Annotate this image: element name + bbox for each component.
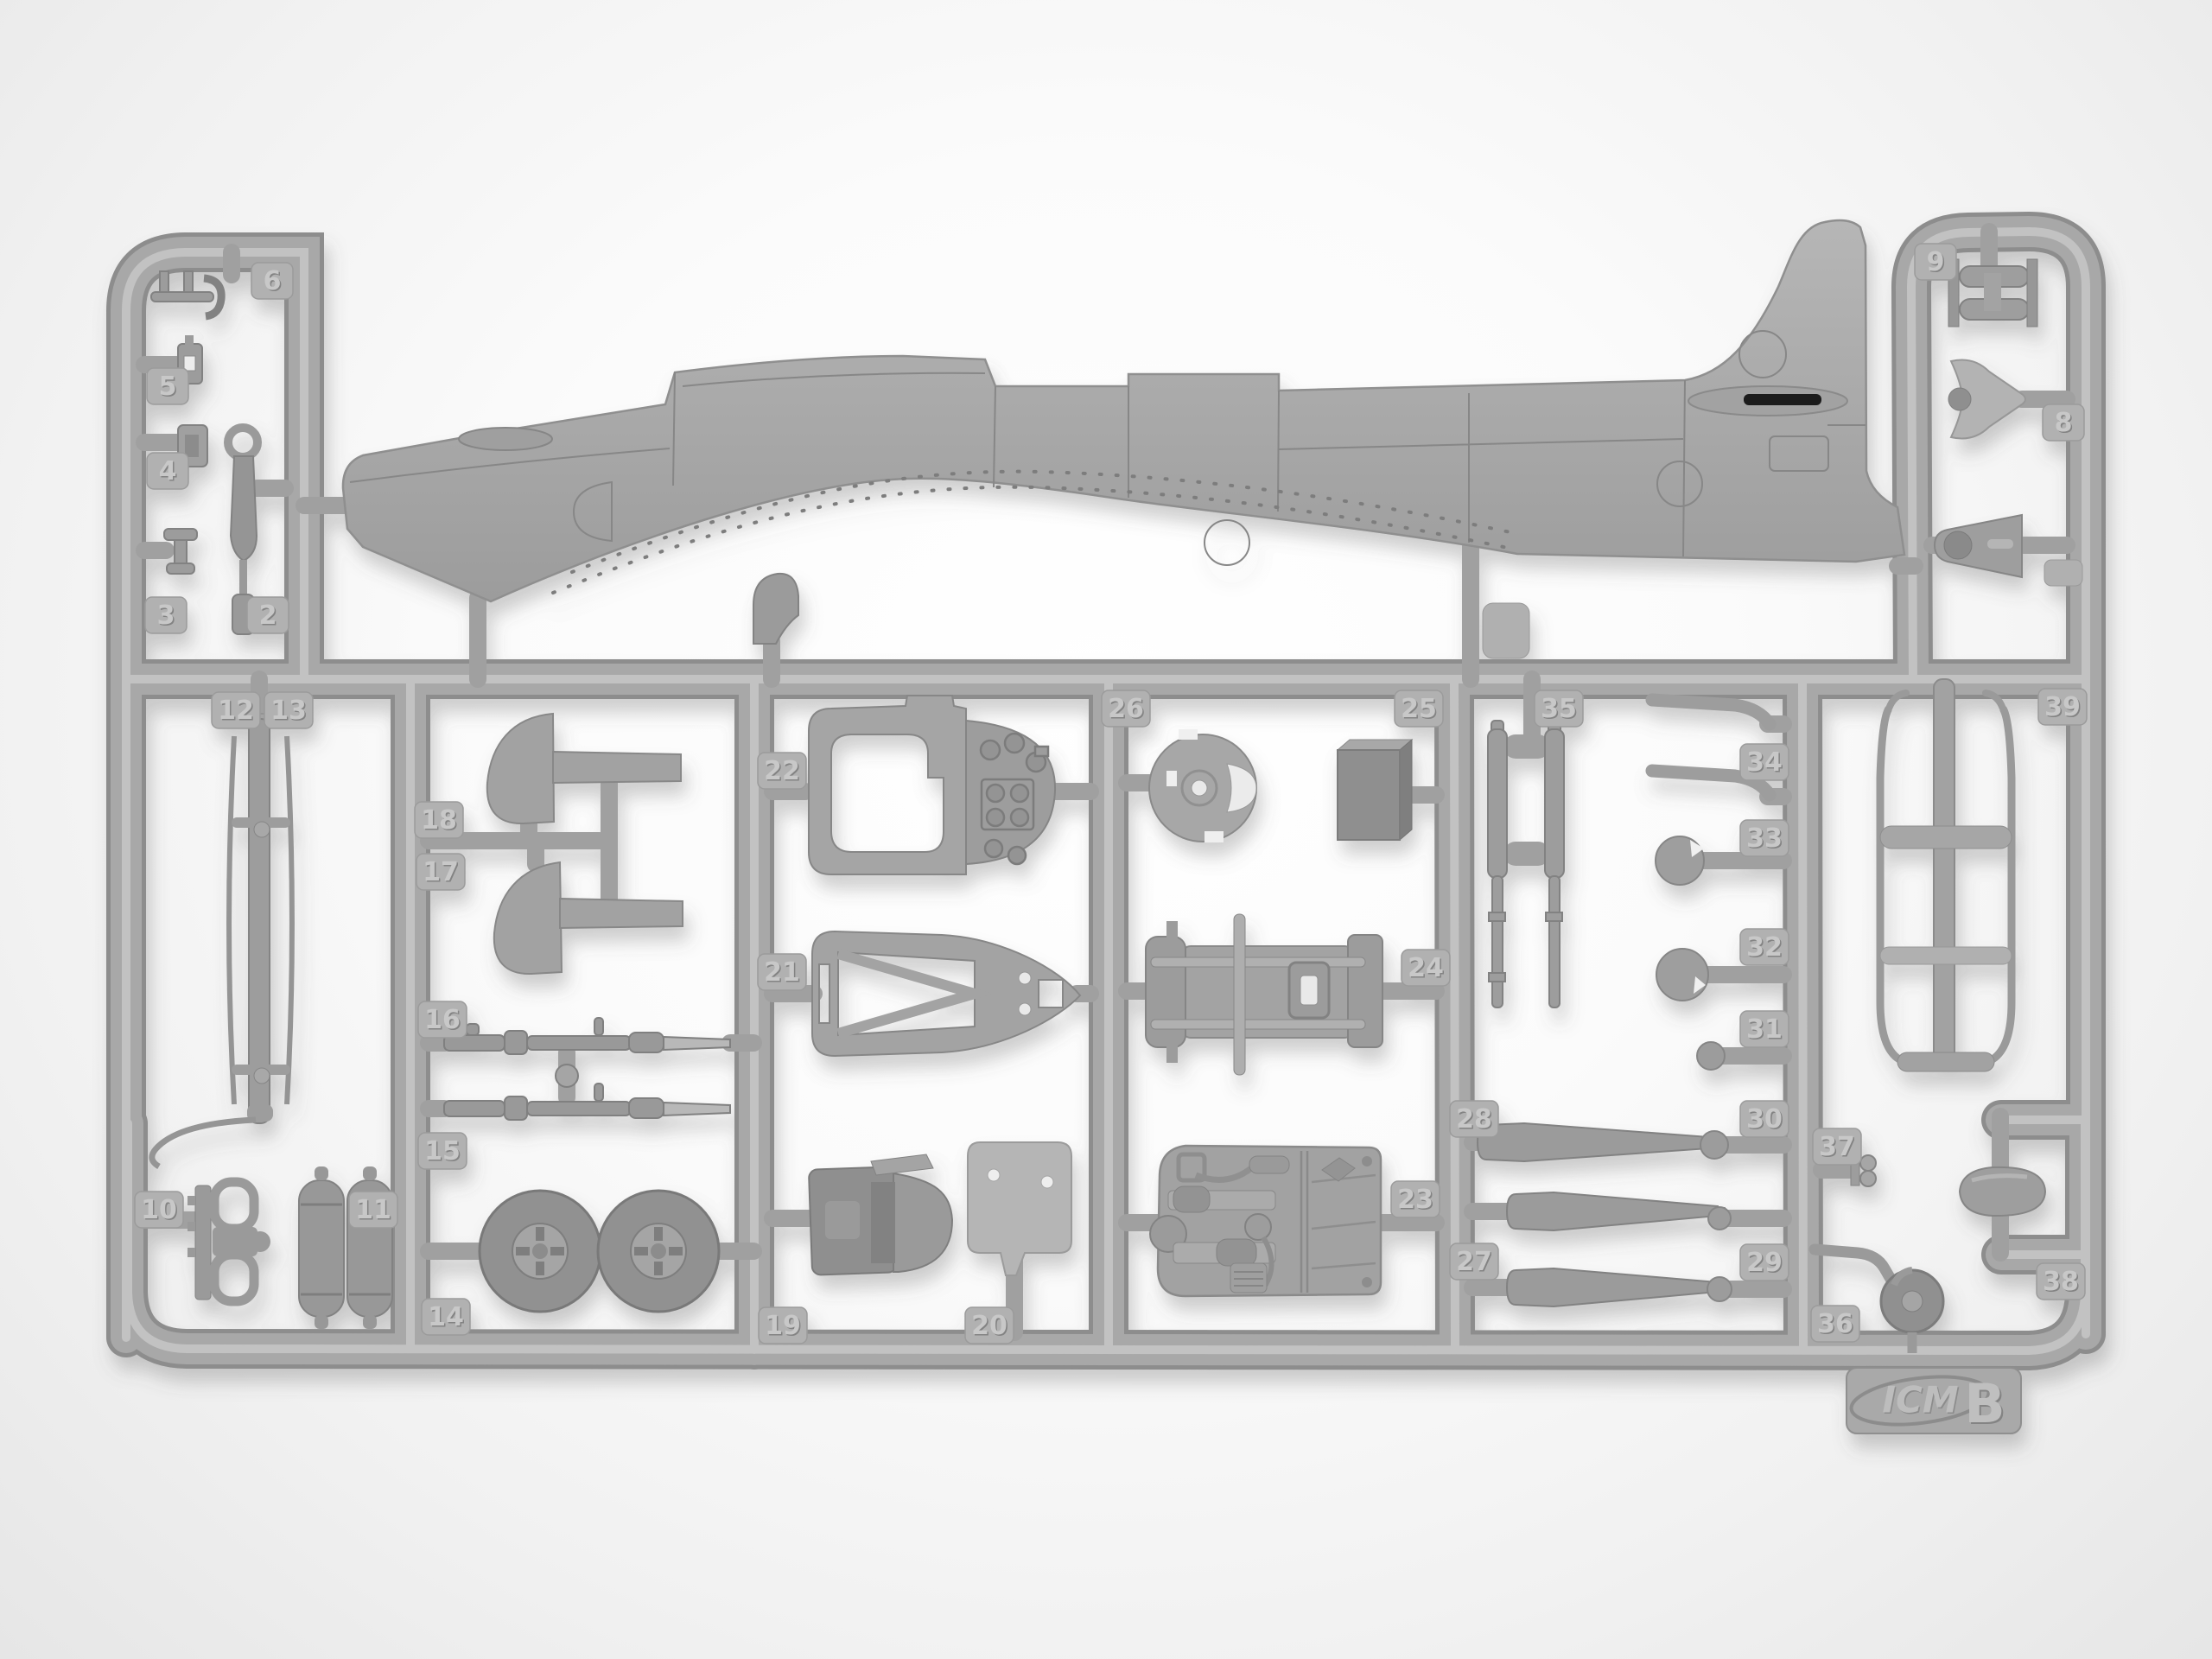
part-32-knob [1656,949,1708,1001]
blank-tab [2044,560,2082,586]
part-tag-4: 44 [147,453,188,489]
part-tag-34: 3434 [1740,744,1789,780]
svg-text:36: 36 [1817,1309,1853,1339]
blank-tab [1483,603,1529,658]
svg-text:2: 2 [259,601,277,631]
carb-intake-part [753,574,798,644]
svg-text:33: 33 [1746,823,1783,854]
part-24-mount-assembly [1146,914,1382,1075]
part-31-ball [1697,1042,1725,1070]
part-tag-31: 3131 [1740,1011,1789,1047]
svg-text:30: 30 [1746,1104,1783,1135]
part-tag-10: 1010 [135,1192,183,1228]
part-26-disc [1149,729,1256,842]
svg-text:14: 14 [428,1302,464,1332]
svg-text:21: 21 [764,957,800,988]
part-15-cannon [444,1065,730,1120]
brand-tab: ICM ICM B B [1847,1368,2021,1437]
part-tag-13: 1313 [264,692,313,728]
part-8-fork [1948,360,2025,439]
part-tag-6: 66 [251,263,293,299]
part-tag-17: 1717 [416,854,465,890]
svg-text:27: 27 [1456,1247,1492,1277]
part-22-bulkhead-instrument-panel [809,696,1055,874]
part-29-ball [1707,1277,1732,1301]
part-tag-26: 2626 [1102,690,1150,727]
part-14-wheels [480,1191,719,1312]
svg-text:20: 20 [971,1311,1007,1341]
part-tag-19: 1919 [759,1307,807,1344]
svg-text:32: 32 [1746,932,1783,963]
part-38-teardrop-fairing [1960,1167,2045,1216]
part-tag-16: 1616 [418,1001,467,1038]
part-tag-25: 2525 [1395,690,1443,727]
main-wheel [480,1191,601,1312]
sprue-letter: B [1964,1372,2005,1435]
part-27-cone [1507,1268,1726,1306]
part-tag-20: 2020 [965,1307,1014,1344]
svg-text:34: 34 [1746,747,1783,778]
fin-black-slot [1744,394,1821,405]
svg-text:6: 6 [264,266,282,296]
part-tag-35: 3535 [1535,690,1583,727]
part-tag-32: 3232 [1740,929,1789,965]
part-tag-38: 3838 [2037,1263,2085,1300]
part-tag-12: 1212 [212,692,260,728]
svg-text:4: 4 [159,456,177,486]
svg-text:3: 3 [157,601,175,631]
part-21-frame-former [812,931,1080,1056]
part-tag-5: 55 [147,368,188,404]
main-wheel [598,1191,719,1312]
svg-text:11: 11 [355,1195,391,1225]
part-tag-14: 1414 [422,1299,470,1335]
part-12-13-gear-leg [152,714,292,1166]
part-tag-29: 2929 [1740,1244,1789,1281]
part-18-elevator [487,714,681,823]
svg-text:29: 29 [1746,1248,1783,1278]
svg-text:8: 8 [2055,408,2073,438]
part-tag-33: 3333 [1740,820,1789,856]
exhaust-panel [459,428,552,450]
part-35-struts [1488,721,1564,1007]
part-tag-2: 22 [247,597,289,633]
svg-text:18: 18 [421,805,457,836]
svg-text:25: 25 [1401,694,1437,724]
part-16-cannon [444,1018,730,1054]
part-19-seat [809,1154,952,1275]
part-tag-27: 2727 [1450,1243,1498,1280]
part-cone-middle [1507,1192,1726,1230]
model-kit-sprue-b: 22 33 44 55 66 88 99 1010 1111 1212 1313… [0,0,2212,1659]
part-28-cone [1478,1123,1724,1161]
svg-text:39: 39 [2044,692,2081,722]
svg-text:13: 13 [270,696,307,726]
svg-text:16: 16 [424,1005,461,1035]
part-tag-28: 2828 [1450,1101,1498,1137]
part-tag-37: 3737 [1813,1128,1861,1165]
svg-text:28: 28 [1456,1104,1492,1135]
part-tag-3: 33 [145,597,187,633]
part-fuselage-half [343,220,1904,644]
part-tag-11: 1111 [349,1192,397,1228]
part-tag-39: 3939 [2038,689,2087,725]
part-17-elevator [494,862,683,974]
part-tag-8: 88 [2043,404,2084,441]
svg-text:26: 26 [1108,694,1144,724]
svg-text:35: 35 [1541,694,1577,724]
svg-text:12: 12 [218,696,254,726]
part-tag-18: 1818 [415,802,463,838]
part-tag-36: 3636 [1811,1306,1859,1342]
part-tag-24: 2424 [1402,950,1450,986]
part-tag-21: 2121 [758,954,806,990]
part-tag-22: 2222 [758,753,806,789]
svg-text:37: 37 [1819,1132,1855,1162]
part-30-ball [1700,1131,1728,1159]
icm-logo-text-highlight: ICM [1882,1379,1958,1421]
svg-text:15: 15 [424,1136,461,1166]
svg-text:17: 17 [423,857,459,887]
brake-line [152,1120,256,1166]
svg-text:9: 9 [1927,247,1945,277]
svg-text:5: 5 [159,372,177,402]
part-tag-15: 1515 [418,1133,467,1169]
sprue-photo: 22 33 44 55 66 88 99 1010 1111 1212 1313… [0,0,2212,1659]
part-ball-small [1708,1207,1731,1230]
part-11-bottles [299,1166,392,1329]
svg-text:38: 38 [2043,1267,2079,1297]
part-6-bracket [151,271,221,316]
part-39-rails [1880,679,2012,1071]
part-9-assembly [1948,259,2037,327]
part-20-door-panel [968,1142,1071,1275]
part-33-knob [1656,836,1704,885]
svg-text:10: 10 [141,1195,177,1225]
svg-text:23: 23 [1397,1185,1433,1215]
svg-text:31: 31 [1746,1014,1783,1045]
svg-text:22: 22 [764,756,800,786]
part-tag-9: 99 [1915,244,1956,280]
part-25-box [1338,740,1412,840]
svg-text:19: 19 [765,1311,801,1341]
part-23-cockpit-floor [1150,1146,1381,1296]
part-10-bracket [188,1182,270,1301]
part-tag-30: 3030 [1740,1101,1789,1137]
svg-text:24: 24 [1408,953,1444,983]
part-triangle-bracket [1935,515,2022,577]
part-tag-23: 2323 [1391,1181,1440,1217]
